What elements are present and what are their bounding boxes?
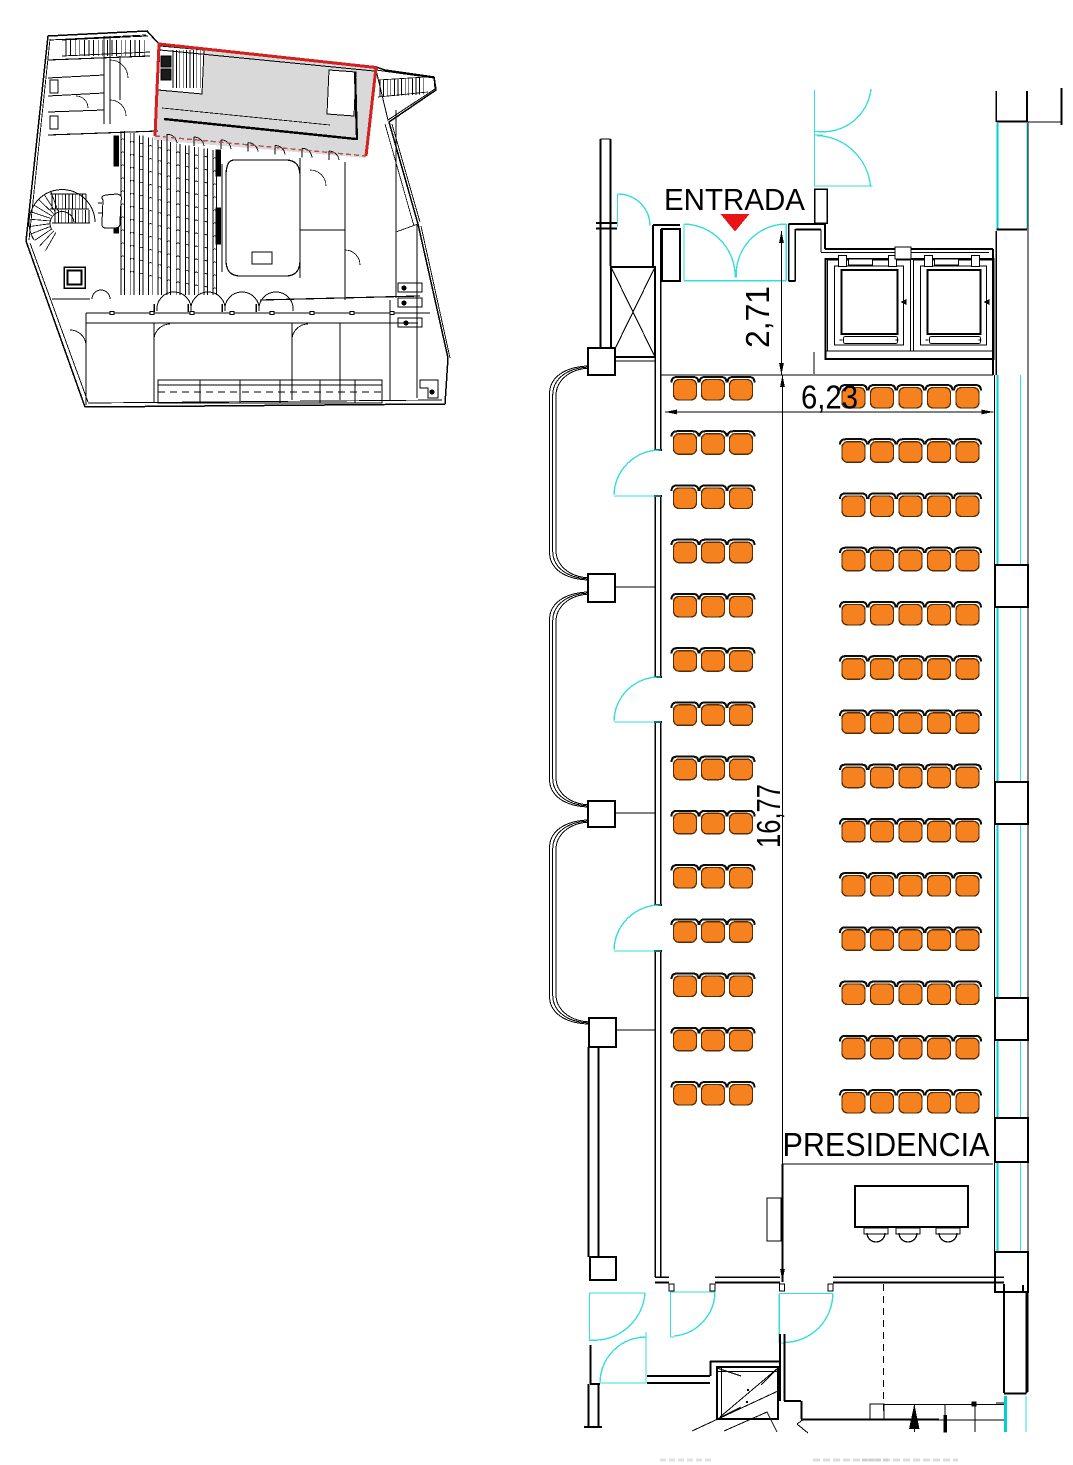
svg-text:ENTRADA: ENTRADA [664, 182, 805, 217]
svg-text:16,77: 16,77 [750, 784, 787, 848]
svg-text:6,23: 6,23 [801, 379, 858, 416]
svg-text:PRESIDENCIA: PRESIDENCIA [783, 1126, 990, 1163]
svg-text:2,71: 2,71 [739, 286, 776, 348]
